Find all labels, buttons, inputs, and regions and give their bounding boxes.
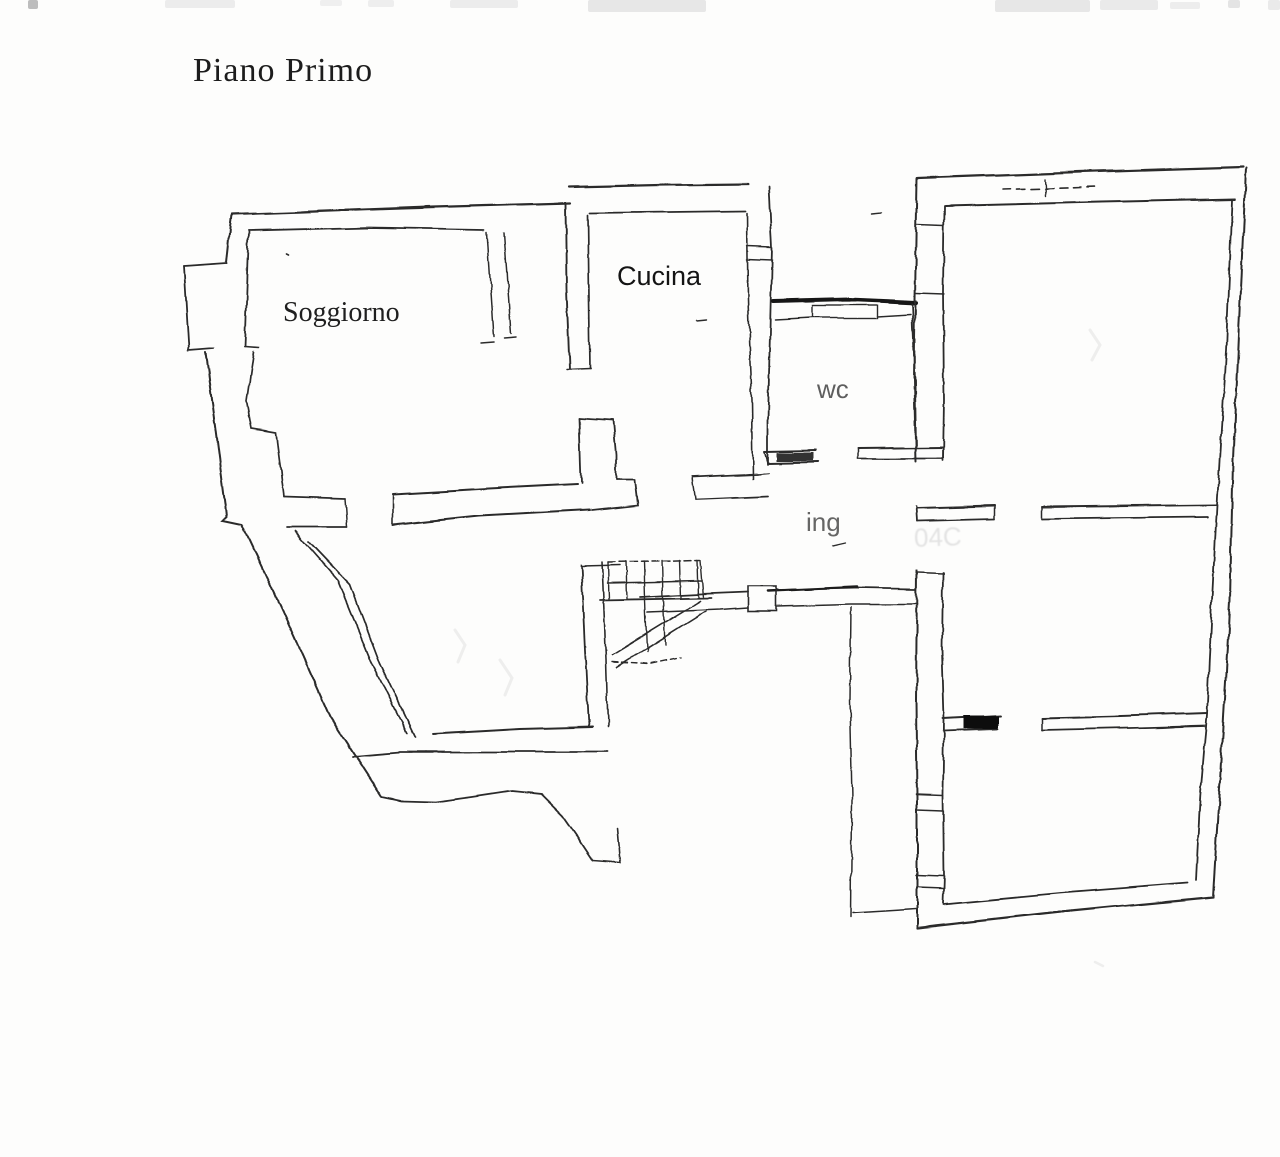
ghost-mark — [1095, 962, 1103, 966]
wall-segment — [942, 573, 944, 903]
wall-segment — [747, 213, 753, 478]
wall-segment — [568, 184, 748, 187]
wall-segment — [566, 203, 570, 369]
wall-segment — [1042, 505, 1216, 507]
wall-segment — [433, 727, 593, 734]
wall-segment — [245, 231, 249, 347]
wall-segment — [602, 562, 608, 726]
wall-segment — [680, 560, 681, 598]
scan-noise-blob — [1228, 0, 1240, 8]
wall-segment — [287, 254, 289, 255]
wall-segment — [481, 343, 494, 344]
wall-segment — [768, 186, 772, 464]
wall-segment — [917, 225, 944, 226]
wall-segment — [352, 752, 608, 756]
wall-segment — [945, 199, 1235, 206]
wall-segment — [245, 347, 259, 348]
wall-segment — [943, 883, 1188, 904]
wall-segment — [914, 178, 917, 462]
room-label-ing: ing — [806, 509, 841, 535]
wall-segment — [613, 420, 616, 480]
room-label-wc: wc — [817, 376, 849, 402]
wall-segment — [249, 228, 484, 231]
wall-segment — [608, 562, 609, 599]
wall-segment — [345, 498, 347, 527]
wall-segment — [917, 810, 943, 811]
wall-segment — [877, 314, 910, 316]
wall-segment — [232, 203, 570, 214]
scan-noise-blob — [1268, 0, 1280, 10]
wall-segment — [393, 484, 577, 494]
wall-segment — [189, 348, 214, 350]
wall-segment — [1042, 726, 1205, 730]
ghost-pencil-marks — [455, 330, 1103, 966]
wall-segment — [593, 828, 620, 862]
wall-segment — [765, 451, 815, 452]
ghost-mark — [455, 630, 465, 662]
scanned-floorplan-page: Piano Primo Soggiorno Cucina wc ing 04C — [0, 0, 1280, 1157]
scan-noise-blob — [368, 0, 394, 7]
wall-segment — [504, 338, 516, 339]
wall-segment — [775, 318, 812, 320]
wall-segment — [612, 601, 700, 655]
wall-detail — [777, 453, 813, 461]
wall-segment — [1003, 187, 1097, 190]
wall-segment — [697, 320, 707, 321]
wall-segment — [698, 560, 699, 598]
wall-segment — [590, 211, 746, 213]
wall-segment — [701, 560, 704, 598]
bleed-through-mark: 04C — [913, 521, 962, 554]
wall-segment — [608, 560, 700, 562]
wall-segment — [917, 506, 995, 508]
wall-segment — [692, 477, 695, 500]
wall-segment — [1045, 179, 1046, 196]
ghost-mark — [500, 660, 512, 695]
wall-segment — [206, 352, 382, 797]
wall-segment — [943, 729, 998, 731]
wall-segment — [247, 352, 284, 496]
wall-segment — [612, 657, 682, 664]
scan-noise-blob — [28, 0, 38, 9]
scan-noise-blob — [165, 0, 235, 8]
wall-segment — [832, 543, 845, 546]
floor-plan-drawing — [0, 0, 1280, 1157]
wall-segment — [640, 592, 748, 597]
wall-segment — [768, 462, 818, 463]
scan-noise-blob — [588, 0, 706, 12]
wall-segment — [581, 565, 589, 727]
scan-noise-blob — [995, 0, 1090, 12]
wall-segment — [850, 607, 852, 917]
wall-segment — [592, 480, 637, 510]
wall-segment — [579, 418, 613, 420]
wall-segment — [608, 581, 702, 583]
wall-segment — [662, 560, 663, 598]
scan-noise-blob — [320, 0, 342, 6]
wall-segment — [1196, 200, 1232, 880]
wall-segment — [943, 206, 944, 461]
wall-segment — [1042, 517, 1208, 519]
scan-noise-blob — [1170, 2, 1200, 9]
wall-segment — [917, 887, 943, 888]
wall-segment — [747, 259, 772, 260]
wall-segment — [695, 497, 768, 500]
wall-segment — [1042, 713, 1207, 718]
wall-segment — [773, 299, 916, 302]
room-label-cucina: Cucina — [617, 263, 701, 290]
wall-segment — [504, 232, 511, 334]
wall-detail — [813, 305, 877, 318]
wall-segment — [393, 510, 590, 525]
wall-detail — [963, 716, 998, 729]
wall-segment — [582, 565, 620, 566]
wall-segment — [284, 496, 345, 498]
wall-segment — [184, 263, 227, 266]
wall-segment — [853, 909, 916, 913]
wall-segment — [916, 875, 943, 876]
wall-segment — [776, 604, 917, 606]
scan-noise-blob — [1100, 0, 1158, 10]
wall-segment — [382, 791, 593, 860]
wall-segment — [918, 167, 1243, 178]
wall-segment — [184, 266, 189, 350]
wall-segment — [227, 214, 232, 263]
wall-segment — [916, 293, 944, 294]
wall-segment — [617, 611, 706, 667]
wall-segment — [579, 418, 581, 483]
scan-noise-blob — [450, 0, 518, 8]
wall-segment — [487, 232, 494, 337]
wall-segment — [645, 600, 647, 652]
room-label-soggiorno: Soggiorno — [283, 299, 400, 327]
wall-segment — [626, 561, 627, 599]
ghost-mark — [1090, 330, 1100, 360]
wall-segment — [757, 473, 768, 474]
wall-segment — [918, 573, 943, 574]
wall-segment — [872, 213, 882, 214]
plan-title: Piano Primo — [193, 52, 373, 90]
wall-segment — [692, 474, 757, 477]
scanner-noise-strip — [28, 0, 1280, 12]
wall-segment — [600, 598, 712, 600]
wall-segment — [644, 561, 645, 599]
wall-segment — [858, 447, 943, 448]
wall-segment — [295, 531, 407, 733]
wall-segment — [588, 215, 590, 368]
wall-segment — [567, 368, 590, 369]
wall-segment — [747, 246, 772, 247]
wall-segment — [916, 795, 943, 796]
wall-lines — [184, 167, 1246, 928]
